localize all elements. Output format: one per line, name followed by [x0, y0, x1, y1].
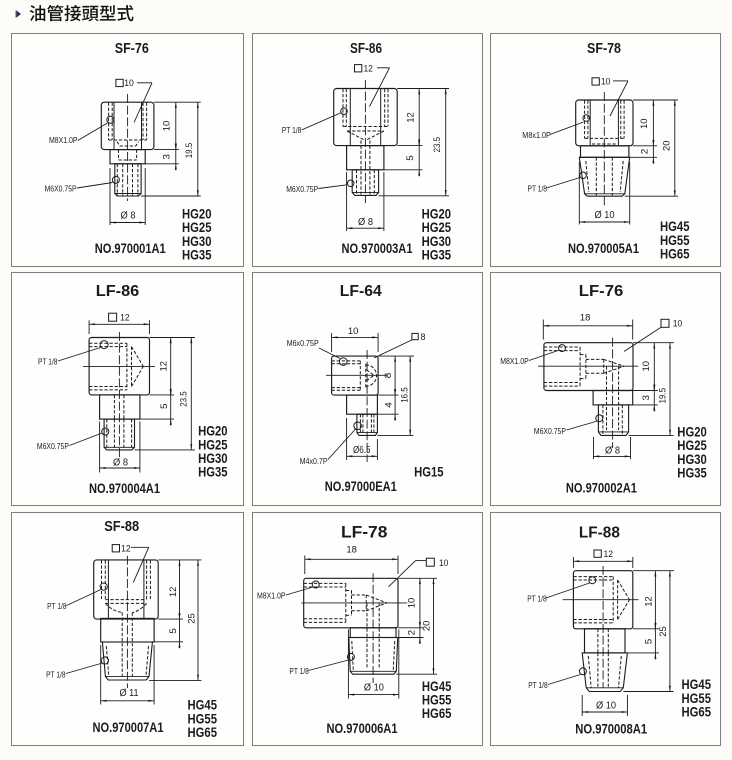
svg-text:LF-64: LF-64	[340, 283, 382, 300]
svg-text:PT 1/8: PT 1/8	[528, 680, 548, 690]
svg-text:LF-78: LF-78	[341, 524, 387, 542]
svg-text:5: 5	[405, 155, 415, 161]
svg-text:PT 1/8: PT 1/8	[46, 669, 66, 679]
svg-text:LF-88: LF-88	[579, 525, 620, 542]
svg-text:HG65: HG65	[422, 706, 452, 721]
svg-text:18: 18	[346, 544, 357, 554]
svg-text:5: 5	[159, 404, 169, 410]
svg-text:Ø 8: Ø 8	[121, 210, 136, 222]
svg-text:4: 4	[383, 402, 393, 408]
svg-text:NO.970006A1: NO.970006A1	[327, 721, 398, 736]
svg-text:Ø 8: Ø 8	[358, 216, 373, 228]
svg-text:3: 3	[161, 154, 171, 160]
svg-text:20: 20	[662, 141, 672, 152]
svg-text:18: 18	[580, 312, 591, 322]
svg-text:HG35: HG35	[182, 248, 212, 263]
svg-text:NO.970007A1: NO.970007A1	[93, 720, 164, 735]
svg-text:23.5: 23.5	[179, 391, 189, 407]
svg-text:12: 12	[158, 361, 168, 372]
svg-text:12: 12	[406, 112, 416, 123]
svg-text:HG35: HG35	[198, 465, 228, 480]
svg-text:NO.970005A1: NO.970005A1	[568, 241, 639, 256]
svg-text:19.5: 19.5	[658, 388, 668, 404]
svg-text:PT 1/8: PT 1/8	[527, 594, 547, 604]
svg-text:M8x1.0P: M8x1.0P	[522, 130, 551, 140]
svg-text:12: 12	[120, 313, 130, 323]
svg-text:HG15: HG15	[414, 465, 444, 480]
svg-text:PT 1/8: PT 1/8	[38, 357, 58, 367]
svg-text:HG35: HG35	[422, 248, 452, 263]
svg-text:Ø 10: Ø 10	[596, 699, 616, 711]
svg-text:10: 10	[641, 361, 651, 372]
svg-text:M6X0.75P: M6X0.75P	[286, 184, 318, 194]
svg-text:10: 10	[407, 598, 417, 609]
svg-text:2: 2	[640, 149, 650, 155]
svg-text:Ø 11: Ø 11	[120, 687, 139, 699]
svg-text:10: 10	[639, 118, 649, 129]
svg-text:16.5: 16.5	[399, 387, 409, 403]
svg-text:12: 12	[363, 64, 373, 74]
svg-text:M4x0.7P: M4x0.7P	[300, 456, 328, 466]
svg-text:2: 2	[407, 630, 417, 636]
svg-text:SF-76: SF-76	[115, 41, 149, 57]
svg-text:NO.970008A1: NO.970008A1	[575, 722, 647, 737]
svg-text:Ø6.5: Ø6.5	[353, 444, 371, 456]
svg-text:NO.970004A1: NO.970004A1	[89, 481, 160, 496]
svg-text:PT 1/8: PT 1/8	[528, 184, 548, 194]
svg-text:M8X1.0P: M8X1.0P	[500, 356, 529, 366]
svg-text:8: 8	[421, 332, 426, 342]
svg-text:PT 1/8: PT 1/8	[282, 125, 302, 135]
svg-text:12: 12	[168, 587, 178, 598]
svg-text:Ø 8: Ø 8	[605, 445, 620, 457]
svg-text:HG65: HG65	[682, 705, 712, 720]
svg-text:25: 25	[658, 626, 668, 637]
svg-text:20: 20	[422, 621, 432, 632]
svg-text:M8X1.0P: M8X1.0P	[49, 135, 78, 145]
svg-text:Ø 10: Ø 10	[364, 682, 384, 694]
svg-text:10: 10	[439, 558, 449, 568]
svg-text:NO.97000EA1: NO.97000EA1	[325, 479, 397, 494]
svg-text:PT 1/8: PT 1/8	[289, 666, 309, 676]
svg-text:19.5: 19.5	[184, 143, 194, 159]
svg-text:HG35: HG35	[677, 466, 707, 481]
svg-text:M6X0.75P: M6X0.75P	[534, 426, 566, 436]
svg-text:3: 3	[641, 395, 651, 401]
svg-text:SF-78: SF-78	[587, 41, 621, 57]
svg-text:M6X0.75P: M6X0.75P	[37, 441, 69, 451]
svg-text:10: 10	[601, 77, 611, 87]
svg-text:10: 10	[162, 121, 172, 132]
svg-text:SF-88: SF-88	[104, 519, 139, 535]
svg-text:Ø 8: Ø 8	[113, 456, 128, 468]
svg-text:25: 25	[187, 613, 197, 624]
svg-text:LF-86: LF-86	[96, 283, 140, 300]
svg-text:M6X0.75P: M6X0.75P	[45, 184, 77, 194]
svg-text:M8X1.0P: M8X1.0P	[257, 591, 286, 601]
svg-text:Ø 10: Ø 10	[595, 209, 615, 221]
svg-text:10: 10	[124, 78, 134, 88]
svg-text:12: 12	[643, 596, 653, 607]
svg-text:12: 12	[121, 543, 131, 553]
svg-text:5: 5	[643, 639, 653, 645]
svg-text:M6x0.75P: M6x0.75P	[287, 338, 319, 348]
svg-text:NO.970001A1: NO.970001A1	[95, 241, 166, 256]
svg-text:HG65: HG65	[660, 247, 690, 262]
svg-text:PT 1/8: PT 1/8	[47, 601, 67, 611]
svg-text:NO.970003A1: NO.970003A1	[342, 241, 413, 256]
svg-text:5: 5	[168, 628, 178, 634]
svg-text:12: 12	[604, 549, 614, 559]
svg-text:8: 8	[383, 373, 393, 379]
svg-text:HG65: HG65	[188, 725, 218, 740]
svg-text:NO.970002A1: NO.970002A1	[566, 481, 637, 496]
svg-text:LF-76: LF-76	[579, 283, 624, 300]
svg-text:23.5: 23.5	[432, 137, 442, 153]
svg-text:10: 10	[673, 318, 683, 328]
svg-text:SF-86: SF-86	[350, 41, 382, 57]
svg-text:10: 10	[348, 326, 359, 336]
